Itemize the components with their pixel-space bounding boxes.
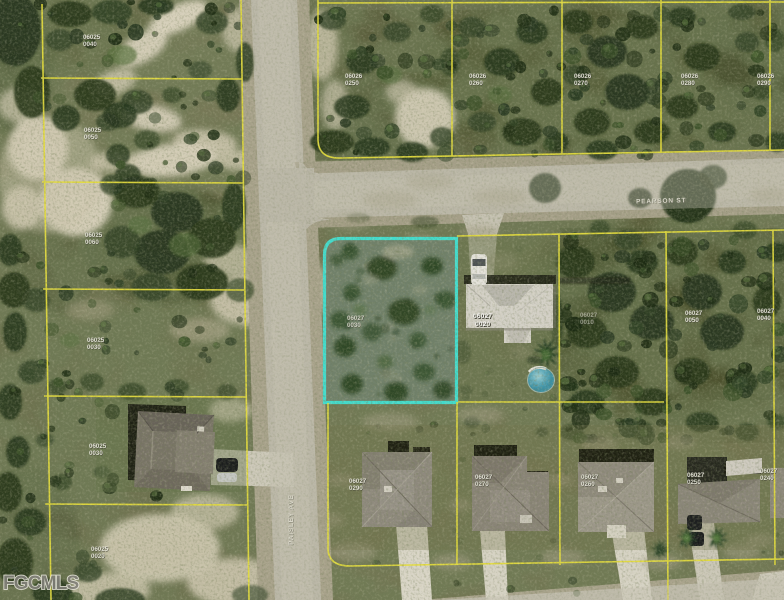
svg-text:FGCMLS: FGCMLS [3, 573, 79, 594]
